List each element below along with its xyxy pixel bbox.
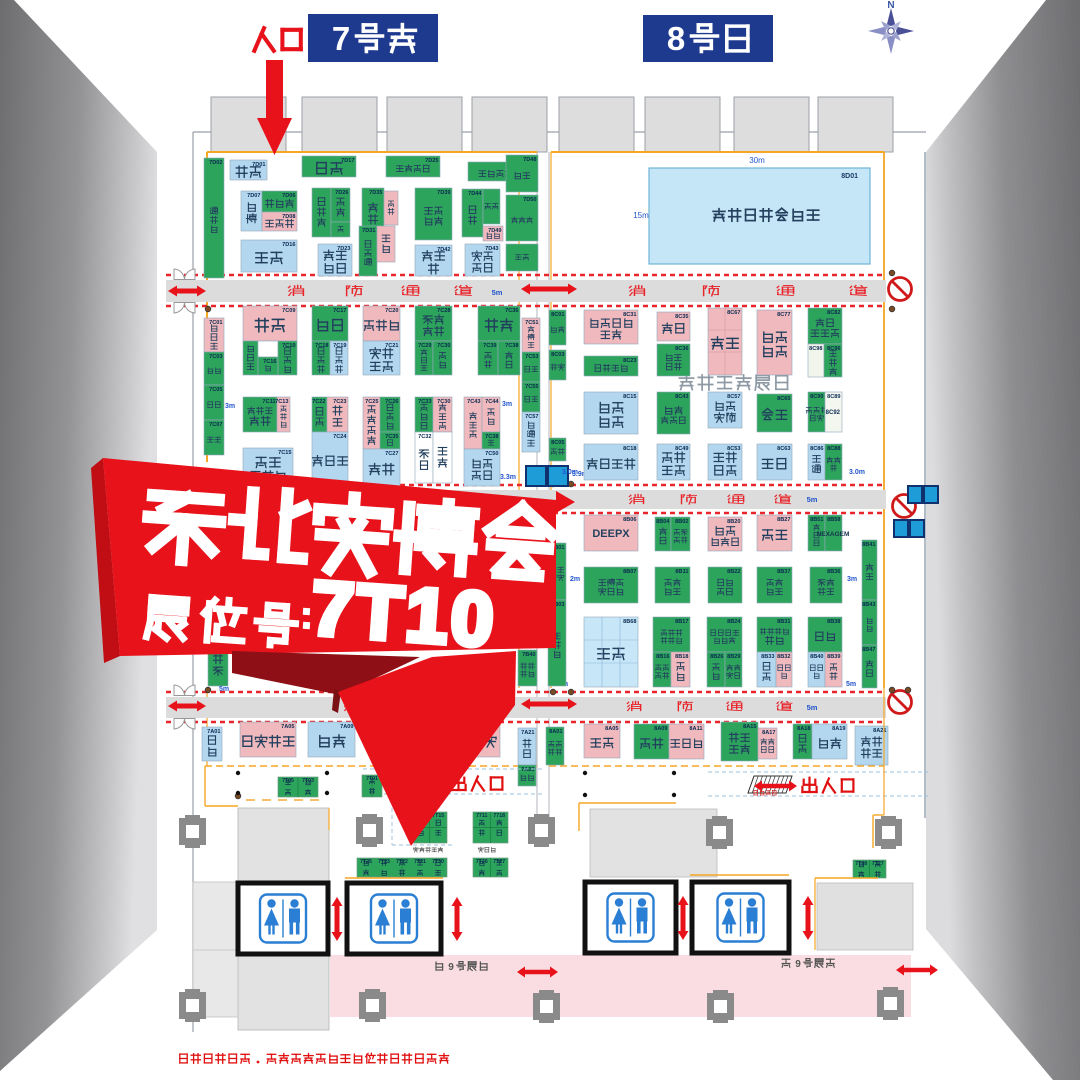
svg-text:3.0m: 3.0m bbox=[562, 469, 578, 476]
svg-text:5m: 5m bbox=[846, 681, 856, 688]
svg-text:7A21: 7A21 bbox=[521, 730, 534, 736]
svg-text:7C13: 7C13 bbox=[275, 399, 288, 405]
svg-text:8C31: 8C31 bbox=[623, 312, 636, 318]
svg-text:8B20: 8B20 bbox=[727, 519, 740, 525]
svg-text:7A09: 7A09 bbox=[340, 724, 353, 730]
svg-text:7D06: 7D06 bbox=[282, 193, 295, 199]
svg-text:3.0m: 3.0m bbox=[849, 469, 865, 476]
svg-text:30m: 30m bbox=[749, 156, 765, 165]
svg-text:7C24: 7C24 bbox=[333, 434, 347, 440]
svg-text:8C82: 8C82 bbox=[827, 310, 840, 316]
svg-text:7C22: 7C22 bbox=[312, 399, 325, 405]
svg-text:7C25: 7C25 bbox=[365, 399, 378, 405]
svg-text:7D16: 7D16 bbox=[282, 242, 295, 248]
svg-text:7C29: 7C29 bbox=[418, 343, 431, 349]
svg-text:8B18: 8B18 bbox=[675, 654, 688, 660]
svg-text:7C09: 7C09 bbox=[282, 308, 295, 314]
svg-text:7D50: 7D50 bbox=[523, 197, 536, 203]
svg-text:8A17: 8A17 bbox=[762, 730, 775, 736]
svg-text:8C05: 8C05 bbox=[551, 440, 564, 446]
svg-text:8B17: 8B17 bbox=[675, 619, 688, 625]
svg-text:8B32: 8B32 bbox=[777, 654, 790, 660]
svg-text:8C63: 8C63 bbox=[777, 446, 790, 452]
svg-text:7C01: 7C01 bbox=[209, 320, 222, 326]
svg-text:9: 9 bbox=[795, 959, 801, 970]
svg-text:7C55: 7C55 bbox=[525, 384, 538, 390]
svg-text:8B26: 8B26 bbox=[710, 654, 723, 660]
svg-text:7C43: 7C43 bbox=[467, 399, 480, 405]
svg-text:7C17: 7C17 bbox=[333, 308, 346, 314]
svg-text:8C67: 8C67 bbox=[727, 310, 740, 316]
svg-text:7C35: 7C35 bbox=[385, 434, 398, 440]
svg-text:8C89: 8C89 bbox=[827, 394, 840, 400]
svg-text:8B43: 8B43 bbox=[862, 602, 875, 608]
svg-text:7C44: 7C44 bbox=[485, 399, 499, 405]
svg-text:7: 7 bbox=[332, 20, 350, 57]
svg-text:8C43: 8C43 bbox=[675, 394, 688, 400]
svg-text:8C23: 8C23 bbox=[623, 358, 636, 364]
svg-text:8C53: 8C53 bbox=[727, 446, 740, 452]
svg-text:7C53: 7C53 bbox=[525, 354, 538, 360]
svg-text:7C21: 7C21 bbox=[385, 343, 398, 349]
svg-text:7D02: 7D02 bbox=[209, 160, 222, 166]
svg-text:8C01: 8C01 bbox=[551, 312, 564, 318]
svg-text:3m: 3m bbox=[847, 576, 857, 583]
svg-text:8C36: 8C36 bbox=[675, 346, 688, 352]
svg-text:8C03: 8C03 bbox=[551, 352, 564, 358]
svg-text:8A11: 8A11 bbox=[689, 726, 702, 732]
svg-text:7C07: 7C07 bbox=[209, 422, 222, 428]
svg-text:7D43: 7D43 bbox=[485, 246, 498, 252]
svg-text:7D35: 7D35 bbox=[369, 190, 382, 196]
svg-text:8B36: 8B36 bbox=[827, 569, 840, 575]
svg-text:7D26: 7D26 bbox=[335, 190, 348, 196]
svg-text:3.3m: 3.3m bbox=[500, 474, 516, 481]
svg-text:7C28: 7C28 bbox=[437, 308, 450, 314]
svg-text:7718: 7718 bbox=[493, 813, 505, 819]
svg-text:7C23: 7C23 bbox=[333, 399, 346, 405]
svg-text:8B16: 8B16 bbox=[656, 654, 669, 660]
svg-text:8C88: 8C88 bbox=[827, 446, 840, 452]
svg-text:8C98: 8C98 bbox=[809, 346, 822, 352]
svg-text:3m: 3m bbox=[502, 401, 512, 408]
svg-text:7A05: 7A05 bbox=[281, 724, 294, 730]
svg-text:9: 9 bbox=[448, 962, 454, 973]
svg-text:8B58: 8B58 bbox=[827, 517, 840, 523]
svg-text:7A23: 7A23 bbox=[521, 767, 534, 773]
svg-text:5m: 5m bbox=[219, 686, 229, 693]
svg-text:7C36: 7C36 bbox=[505, 308, 518, 314]
svg-text:8C65: 8C65 bbox=[777, 396, 790, 402]
svg-text:7C05: 7C05 bbox=[209, 387, 222, 393]
svg-text:8B41: 8B41 bbox=[862, 542, 875, 548]
svg-text:8B51: 8B51 bbox=[810, 517, 823, 523]
svg-text:7T26: 7T26 bbox=[476, 859, 488, 865]
svg-text:8B29: 8B29 bbox=[727, 654, 740, 660]
svg-text:8C77: 8C77 bbox=[777, 312, 790, 318]
svg-text:8B11: 8B11 bbox=[675, 569, 688, 575]
svg-text:8B24: 8B24 bbox=[727, 619, 741, 625]
svg-text:8C90: 8C90 bbox=[810, 394, 823, 400]
svg-text:5m: 5m bbox=[807, 703, 818, 712]
svg-text:7T23: 7T23 bbox=[378, 859, 390, 865]
svg-text:5m: 5m bbox=[807, 495, 818, 504]
svg-text:7B40: 7B40 bbox=[522, 652, 535, 658]
svg-text:7T25: 7T25 bbox=[360, 859, 372, 865]
svg-text:8B07: 8B07 bbox=[623, 569, 636, 575]
svg-text:8A19: 8A19 bbox=[832, 726, 845, 732]
svg-text:7C30: 7C30 bbox=[437, 399, 450, 405]
svg-text:8B22: 8B22 bbox=[727, 569, 740, 575]
svg-text:8B04: 8B04 bbox=[656, 519, 670, 525]
svg-text:15m: 15m bbox=[633, 211, 649, 220]
svg-text:7C38: 7C38 bbox=[505, 343, 518, 349]
svg-text:7C27: 7C27 bbox=[385, 451, 398, 457]
svg-text:8B02: 8B02 bbox=[675, 519, 688, 525]
svg-text:8C57: 8C57 bbox=[727, 394, 740, 400]
svg-text:NEXAGEM: NEXAGEM bbox=[817, 531, 850, 538]
svg-text:7C30: 7C30 bbox=[437, 343, 450, 349]
svg-text:8B33: 8B33 bbox=[761, 654, 774, 660]
svg-text:7C39: 7C39 bbox=[483, 343, 496, 349]
svg-text:8: 8 bbox=[667, 20, 685, 57]
svg-text:7D31: 7D31 bbox=[362, 228, 375, 234]
svg-text:8C92: 8C92 bbox=[826, 410, 841, 416]
svg-text:5m: 5m bbox=[492, 288, 503, 297]
svg-text:8B27: 8B27 bbox=[777, 517, 790, 523]
svg-text:8B06: 8B06 bbox=[623, 517, 636, 523]
svg-text:7C20: 7C20 bbox=[385, 308, 398, 314]
svg-text:8C18: 8C18 bbox=[623, 446, 636, 452]
svg-text:8B31: 8B31 bbox=[777, 619, 790, 625]
svg-text:7C57: 7C57 bbox=[525, 414, 538, 420]
svg-text:8B39: 8B39 bbox=[827, 654, 840, 660]
svg-text:7D17: 7D17 bbox=[341, 158, 354, 164]
svg-text:DEEPX: DEEPX bbox=[592, 528, 630, 540]
svg-text:8B47: 8B47 bbox=[862, 647, 875, 653]
svg-text:7C38: 7C38 bbox=[485, 434, 498, 440]
svg-text:8B40: 8B40 bbox=[810, 654, 823, 660]
svg-text:N: N bbox=[887, 0, 894, 11]
svg-text:3m: 3m bbox=[225, 403, 235, 410]
svg-text:7C11: 7C11 bbox=[262, 399, 275, 405]
svg-text:7D25: 7D25 bbox=[425, 158, 438, 164]
svg-text:8A05: 8A05 bbox=[605, 726, 618, 732]
svg-text:8C86: 8C86 bbox=[810, 446, 823, 452]
svg-text:8C35: 8C35 bbox=[675, 314, 688, 320]
svg-text:7D08: 7D08 bbox=[282, 214, 295, 220]
svg-text:8C49: 8C49 bbox=[675, 446, 688, 452]
svg-text:8A01: 8A01 bbox=[549, 729, 562, 735]
svg-text:8B37: 8B37 bbox=[777, 569, 790, 575]
svg-text:7C15: 7C15 bbox=[278, 450, 291, 456]
svg-text:8A15: 8A15 bbox=[743, 724, 756, 730]
svg-text:7D48: 7D48 bbox=[523, 157, 536, 163]
svg-text:7C03: 7C03 bbox=[209, 354, 222, 360]
svg-text:2m: 2m bbox=[570, 576, 580, 583]
svg-text:7D39: 7D39 bbox=[437, 190, 450, 196]
svg-text:7C50: 7C50 bbox=[485, 451, 498, 457]
svg-text:8B68: 8B68 bbox=[623, 619, 636, 625]
svg-text:8B38: 8B38 bbox=[827, 619, 840, 625]
svg-text:8A09: 8A09 bbox=[654, 726, 667, 732]
svg-text:7C16: 7C16 bbox=[263, 359, 276, 365]
svg-text:7D44: 7D44 bbox=[468, 191, 482, 197]
svg-text:8A18: 8A18 bbox=[797, 726, 810, 732]
svg-text:7711: 7711 bbox=[476, 813, 487, 819]
svg-text:8C15: 8C15 bbox=[623, 394, 636, 400]
svg-text:7T28: 7T28 bbox=[855, 861, 867, 867]
svg-text:7T10: 7T10 bbox=[308, 566, 499, 664]
svg-text:8D01: 8D01 bbox=[841, 173, 858, 180]
svg-text:7C32: 7C32 bbox=[418, 434, 431, 440]
svg-text:7D07: 7D07 bbox=[247, 193, 260, 199]
svg-text:7A01: 7A01 bbox=[207, 729, 220, 735]
svg-text:7C51: 7C51 bbox=[525, 320, 538, 326]
